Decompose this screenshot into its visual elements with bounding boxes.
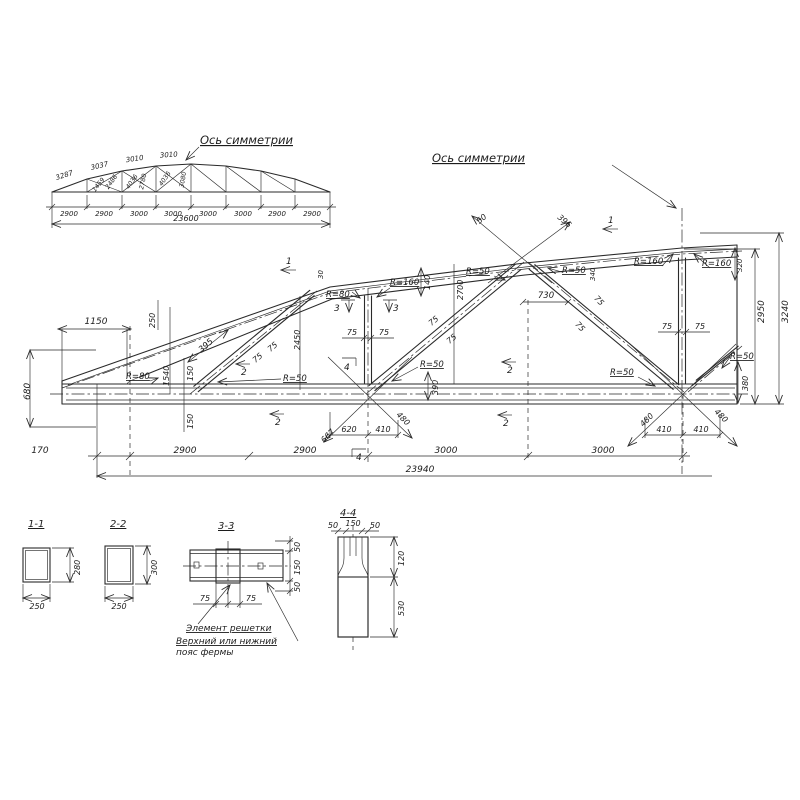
dims-left: 1150 250 395 R=80 1540 150 150 680 2450 … xyxy=(23,296,307,432)
overview-panel-dims: 2900 2900 3000 3000 3000 3000 2900 2900 … xyxy=(46,192,336,228)
dim-top-chord: 3037 xyxy=(90,160,110,172)
dim-75: 75 xyxy=(200,594,210,603)
marker-4: 4 xyxy=(356,453,362,463)
note-chord-line2: пояс фермы xyxy=(176,648,233,658)
dim-panel: 3000 xyxy=(130,210,148,218)
dim-bottom: 3000 xyxy=(592,446,615,456)
section-3-3-notes: Элемент решетки Верхний или нижний пояс … xyxy=(176,583,298,658)
main-axis-callout: Ось симметрии xyxy=(432,151,676,208)
dim-bottom: 3000 xyxy=(435,446,458,456)
dim-section-width: 250 xyxy=(111,602,126,611)
dim-667: 667 xyxy=(319,427,337,445)
dim-top-chord: 3010 xyxy=(160,150,179,159)
section-title: 1-1 xyxy=(28,519,44,530)
dim-530: 530 xyxy=(397,601,406,616)
overview-truss: Ось симметрии 3287 3037 3010 3010 1459 2… xyxy=(46,133,336,228)
dim-75: 75 xyxy=(662,322,672,331)
dim-bottom: 2900 xyxy=(294,446,317,456)
section-3-3: 3-3 50 150 50 75 75 Элемент решетки Верх… xyxy=(176,521,302,658)
dim-75: 75 xyxy=(251,351,265,364)
dim-480: 480 xyxy=(713,407,730,424)
dim-480: 480 xyxy=(638,411,655,428)
overview-axis-callout: Ось симметрии xyxy=(186,133,294,160)
marker-2: 2 xyxy=(241,368,247,378)
dim-top-chord: 3287 xyxy=(55,169,75,182)
section-2-2: 2-2 250 300 xyxy=(105,519,159,611)
marker-2: 2 xyxy=(275,418,281,428)
dim-30: 30 xyxy=(317,270,325,279)
dim-75: 75 xyxy=(573,320,587,334)
dim-section-height: 300 xyxy=(150,560,159,575)
dim-390: 390 xyxy=(431,380,440,395)
dim-75: 75 xyxy=(427,314,441,327)
marker-3: 3 xyxy=(334,304,340,314)
dim-bottom: 170 xyxy=(31,446,48,456)
sections: 1-1 250 280 2-2 250 300 3-3 xyxy=(23,508,406,658)
section-4-4: 4-4 50 150 50 120 530 xyxy=(328,508,406,650)
dim-75: 75 xyxy=(246,594,256,603)
dim-150: 150 xyxy=(186,366,195,381)
dim-r80: R=80 xyxy=(326,290,350,300)
dim-r80: R=80 xyxy=(126,372,150,382)
dim-480: 480 xyxy=(395,410,412,427)
dim-1540: 1540 xyxy=(162,366,171,386)
dim-50: 50 xyxy=(370,521,380,530)
dim-panel: 2900 xyxy=(303,210,321,218)
dim-140: 140 xyxy=(423,275,432,290)
dim-r160: R=160 xyxy=(702,259,731,269)
dim-section-height: 280 xyxy=(73,560,82,575)
dim-r160: R=160 xyxy=(390,278,419,288)
section-title: 3-3 xyxy=(218,521,234,532)
dim-r50: R=50 xyxy=(466,267,490,277)
overview-web-dims: 1459 2486 4036 2780 4036 3080 xyxy=(91,170,188,193)
dim-410: 410 xyxy=(375,425,390,434)
drawing-sheet: { "axis_label": "Ось симметрии", "notes"… xyxy=(0,0,800,800)
dim-75: 75 xyxy=(592,294,606,308)
dims-bottom: 170 2900 2900 3000 3000 23940 xyxy=(31,384,712,478)
dim-web: 3080 xyxy=(179,171,189,188)
main-truss-web xyxy=(190,258,742,394)
dim-web: 2780 xyxy=(138,173,148,190)
dim-r160: R=160 xyxy=(634,257,663,267)
dim-120: 120 xyxy=(397,551,406,566)
dim-75: 75 xyxy=(695,322,705,331)
dim-410: 410 xyxy=(656,425,671,434)
dim-410: 410 xyxy=(693,425,708,434)
marker-4: 4 xyxy=(344,363,350,373)
marker-3: 3 xyxy=(393,304,399,314)
dim-bottom: 2900 xyxy=(174,446,197,456)
section-title: 4-4 xyxy=(340,508,356,519)
dim-panel: 2900 xyxy=(268,210,286,218)
dim-r50: R=50 xyxy=(420,360,444,370)
dims-top: 30 R=80 R=160 75 75 140 2700 50 396 R=50… xyxy=(317,212,744,384)
dim-web: 2486 xyxy=(104,174,119,191)
dim-panel: 3000 xyxy=(234,210,252,218)
dims-node1: R=50 390 480 667 620 410 xyxy=(319,360,444,444)
dim-75: 75 xyxy=(379,328,389,337)
dim-panel: 3000 xyxy=(199,210,217,218)
dim-150: 150 xyxy=(186,414,195,429)
main-truss: Ось симметрии 1150 250 395 R=80 1540 xyxy=(23,151,791,478)
dim-3240: 3240 xyxy=(781,300,791,323)
truss-drawing: Ось симметрии 3287 3037 3010 3010 1459 2… xyxy=(0,0,800,800)
marker-1: 1 xyxy=(286,257,292,267)
axis-of-symmetry-label: Ось симметрии xyxy=(432,151,526,165)
dim-2450: 2450 xyxy=(293,330,302,350)
dim-680: 680 xyxy=(23,383,33,400)
dim-320: 320 xyxy=(736,258,744,272)
note-lattice-element: Элемент решетки xyxy=(185,624,272,634)
dim-web: 4036 xyxy=(158,170,173,187)
dim-section-width: 250 xyxy=(29,602,44,611)
dim-50: 50 xyxy=(328,521,338,530)
dim-overview-total: 23600 xyxy=(173,214,198,223)
dim-380: 380 xyxy=(741,376,750,391)
dim-340: 340 xyxy=(589,267,597,281)
dim-730: 730 xyxy=(538,291,554,301)
dim-75: 75 xyxy=(347,328,357,337)
marker-2: 2 xyxy=(503,419,509,429)
dim-250: 250 xyxy=(148,313,157,328)
dim-r50: R=50 xyxy=(610,368,634,378)
axis-of-symmetry-label: Ось симметрии xyxy=(200,133,294,147)
dim-panel: 2900 xyxy=(95,210,113,218)
dim-396: 396 xyxy=(556,213,573,230)
dim-620: 620 xyxy=(341,425,356,434)
dim-1150: 1150 xyxy=(85,317,108,327)
dim-50: 50 xyxy=(475,212,489,225)
dim-50: 50 xyxy=(293,542,302,552)
dim-r50: R=50 xyxy=(283,374,307,384)
dim-75: 75 xyxy=(266,340,280,353)
dim-panel: 2900 xyxy=(60,210,78,218)
section-title: 2-2 xyxy=(110,519,126,530)
dim-2950: 2950 xyxy=(757,300,767,323)
dim-50: 50 xyxy=(293,582,302,592)
section-1-1: 1-1 250 280 xyxy=(23,519,82,611)
marker-2: 2 xyxy=(507,366,513,376)
marker-1: 1 xyxy=(608,216,614,226)
dim-r50: R=50 xyxy=(730,352,754,362)
dim-150: 150 xyxy=(293,560,302,575)
dim-r50: R=50 xyxy=(562,266,586,276)
dim-2700: 2700 xyxy=(456,280,465,300)
note-chord-line1: Верхний или нижний xyxy=(176,637,277,647)
dim-main-total: 23940 xyxy=(406,465,435,475)
dim-top-chord: 3010 xyxy=(125,154,144,164)
dim-75: 75 xyxy=(445,332,459,345)
